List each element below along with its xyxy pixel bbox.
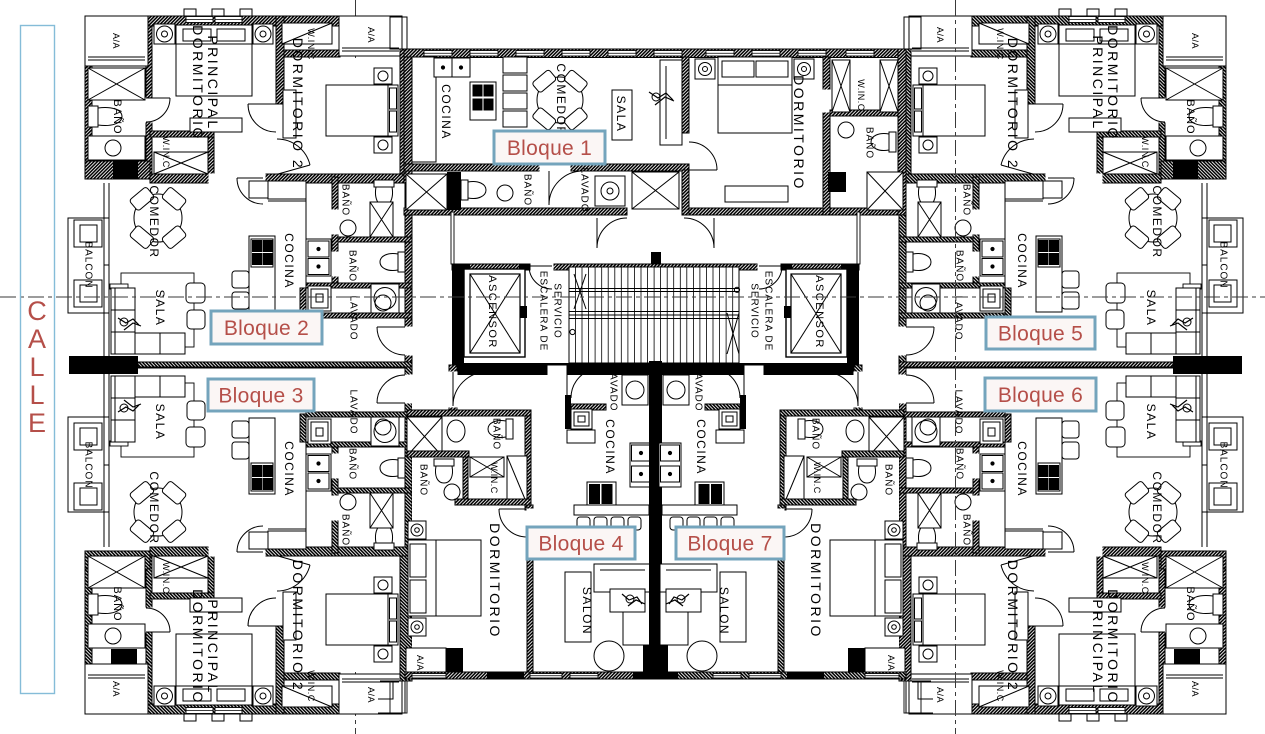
svg-text:A/A: A/A [111, 33, 121, 49]
svg-text:ASCENSOR: ASCENSOR [813, 275, 825, 349]
svg-text:PRINCIPAL: PRINCIPAL [205, 35, 221, 130]
svg-text:SALON: SALON [717, 587, 731, 635]
svg-text:BAÑO: BAÑO [522, 174, 535, 206]
svg-text:SERVICIO: SERVICIO [552, 283, 563, 339]
svg-text:ESCALERA DE: ESCALERA DE [538, 271, 549, 351]
svg-text:SALA: SALA [614, 96, 628, 133]
svg-text:SALA: SALA [1144, 290, 1158, 327]
svg-text:PRINCIPAL: PRINCIPAL [1090, 599, 1106, 694]
svg-text:W.IN.C: W.IN.C [306, 28, 316, 60]
svg-text:SALA: SALA [153, 290, 167, 327]
svg-text:A/A: A/A [1190, 681, 1200, 697]
svg-text:LAVADO: LAVADO [953, 389, 964, 434]
svg-text:DORMITORIO 2: DORMITORIO 2 [290, 560, 306, 692]
svg-text:SERVICIO: SERVICIO [749, 283, 760, 339]
svg-text:Bloque 1: Bloque 1 [507, 137, 592, 160]
svg-text:DORMITORIO: DORMITORIO [1105, 589, 1121, 705]
svg-text:BALCON: BALCON [83, 441, 94, 488]
svg-text:SALON: SALON [580, 587, 594, 635]
svg-text:A: A [28, 324, 46, 354]
svg-text:Bloque 3: Bloque 3 [218, 385, 303, 408]
svg-text:SALA: SALA [153, 404, 167, 441]
svg-text:COCINA: COCINA [1015, 233, 1029, 289]
svg-text:DORMITORIO 2: DORMITORIO 2 [1005, 560, 1021, 692]
svg-text:BALCON: BALCON [1218, 441, 1229, 488]
svg-text:BAÑO: BAÑO [1184, 586, 1197, 621]
svg-text:BAÑO: BAÑO [1184, 99, 1197, 134]
svg-text:DORMITORIO: DORMITORIO [190, 25, 206, 141]
svg-text:COMEDOR: COMEDOR [1150, 471, 1164, 544]
svg-text:DORMITORIO: DORMITORIO [487, 523, 503, 639]
svg-text:BAÑO: BAÑO [347, 448, 360, 480]
svg-text:PRINCIPAL: PRINCIPAL [205, 599, 221, 694]
svg-text:COCINA: COCINA [1015, 441, 1029, 497]
svg-text:W.IN.C: W.IN.C [306, 670, 316, 702]
svg-text:BALCON: BALCON [83, 241, 94, 288]
svg-text:BAÑO: BAÑO [961, 514, 974, 546]
svg-text:Bloque 6: Bloque 6 [998, 384, 1083, 407]
svg-text:DORMITORIO 2: DORMITORIO 2 [1005, 38, 1021, 170]
svg-text:BAÑO: BAÑO [111, 586, 124, 621]
svg-text:BAÑO: BAÑO [883, 464, 896, 496]
svg-text:COCINA: COCINA [282, 233, 296, 289]
svg-text:BAÑO: BAÑO [340, 184, 353, 216]
svg-text:DORMITORIO: DORMITORIO [190, 589, 206, 705]
svg-text:C: C [27, 296, 47, 326]
svg-text:Bloque 2: Bloque 2 [224, 317, 309, 340]
svg-text:A/A: A/A [935, 27, 945, 43]
svg-text:W.IN.C: W.IN.C [1140, 136, 1150, 168]
svg-text:PRINCIPAL: PRINCIPAL [1090, 35, 1106, 130]
svg-text:LAVADO: LAVADO [953, 295, 964, 340]
svg-text:ASCENSOR: ASCENSOR [486, 275, 498, 349]
svg-text:BAÑO: BAÑO [864, 127, 877, 159]
svg-text:COMEDOR: COMEDOR [554, 63, 568, 136]
svg-text:W.IN.C: W.IN.C [995, 28, 1005, 60]
svg-text:COCINA: COCINA [282, 441, 296, 497]
svg-text:BAÑO: BAÑO [347, 250, 360, 282]
svg-text:ESCALERA DE: ESCALERA DE [763, 271, 774, 351]
svg-text:COCINA: COCINA [694, 419, 708, 475]
svg-text:BAÑO: BAÑO [340, 514, 353, 546]
svg-text:A/A: A/A [366, 687, 376, 703]
svg-text:A/A: A/A [366, 27, 376, 43]
svg-text:A/A: A/A [415, 655, 425, 671]
svg-text:W.IN.C: W.IN.C [161, 562, 171, 594]
svg-text:LAVADO: LAVADO [348, 389, 359, 434]
svg-text:W.IN.C: W.IN.C [812, 462, 822, 494]
svg-text:LAVADO: LAVADO [608, 366, 619, 411]
svg-text:LAVADO: LAVADO [693, 366, 704, 411]
svg-text:Bloque 7: Bloque 7 [687, 533, 772, 556]
svg-text:BAÑO: BAÑO [961, 184, 974, 216]
svg-text:COMEDOR: COMEDOR [147, 185, 161, 258]
svg-text:A/A: A/A [886, 655, 896, 671]
svg-text:Bloque 5: Bloque 5 [998, 323, 1083, 346]
svg-text:COCINA: COCINA [439, 84, 453, 140]
svg-text:BAÑO: BAÑO [810, 418, 823, 450]
svg-text:BAÑO: BAÑO [491, 418, 504, 450]
svg-text:SALA: SALA [1144, 404, 1158, 441]
svg-text:LAVADO: LAVADO [579, 167, 590, 212]
svg-text:COCINA: COCINA [603, 419, 617, 475]
svg-text:BAÑO: BAÑO [111, 99, 124, 134]
svg-text:L: L [29, 380, 44, 410]
svg-text:A/A: A/A [1190, 33, 1200, 49]
svg-text:COMEDOR: COMEDOR [1150, 185, 1164, 258]
svg-text:W.IN.C: W.IN.C [856, 79, 866, 111]
svg-text:COMEDOR: COMEDOR [147, 471, 161, 544]
svg-text:A/A: A/A [111, 681, 121, 697]
svg-text:DORMITORIO 2: DORMITORIO 2 [290, 38, 306, 170]
svg-text:DORMITORIO: DORMITORIO [808, 523, 824, 639]
svg-text:L: L [29, 352, 44, 382]
svg-text:W.IN.C: W.IN.C [995, 670, 1005, 702]
svg-text:DORMITORIO: DORMITORIO [1105, 25, 1121, 141]
svg-text:A/A: A/A [935, 687, 945, 703]
svg-text:E: E [28, 408, 46, 438]
svg-text:W.IN.C: W.IN.C [161, 136, 171, 168]
svg-text:DORMITORIO: DORMITORIO [791, 75, 807, 191]
svg-text:W.IN.C: W.IN.C [1140, 562, 1150, 594]
svg-text:BAÑO: BAÑO [418, 464, 431, 496]
svg-text:BALCON: BALCON [1218, 241, 1229, 288]
svg-text:LAVADO: LAVADO [348, 295, 359, 340]
svg-text:Bloque 4: Bloque 4 [538, 533, 623, 556]
svg-text:W.IN.C: W.IN.C [489, 462, 499, 494]
